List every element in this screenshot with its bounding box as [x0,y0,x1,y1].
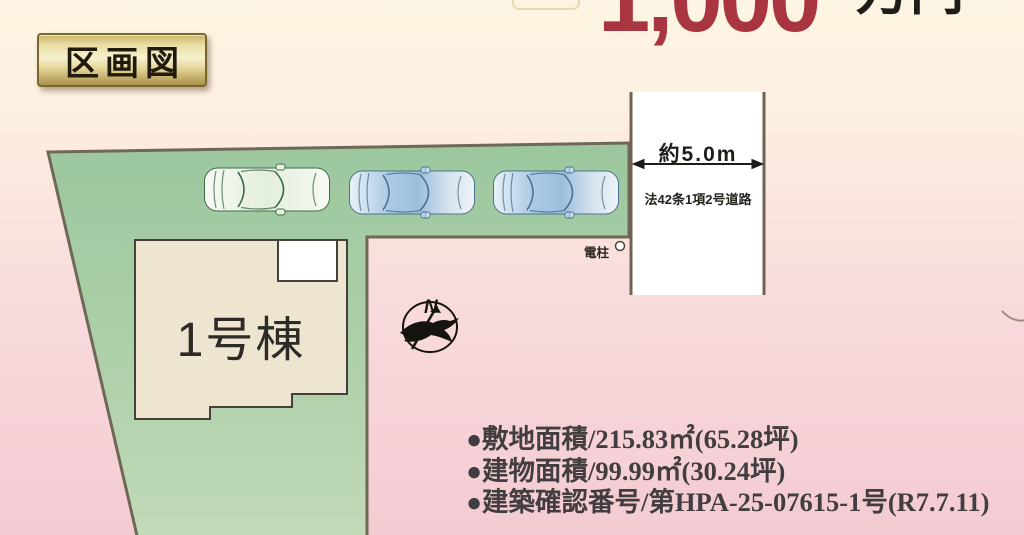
compass: N [400,297,459,352]
title-badge: 区画図 [37,33,207,87]
utility-pole-circle [616,242,625,251]
detail-line-confirmation-number: ●建築確認番号/第HPA-25-07615-1号(R7.7.11) [466,487,989,519]
detail-line-building-area: ●建物面積/99.99㎡(30.24坪) [466,456,989,488]
utility-pole-label: 電柱 [584,242,609,261]
detail-line-site-area: ●敷地面積/215.83㎡(65.28坪) [466,424,989,456]
price-unit: 万円 [856,0,964,18]
neighbor-corner-line [1002,311,1024,321]
car-top-view-blue-2 [494,167,619,218]
car-top-view-green [205,164,330,215]
car-top-view-blue-1 [350,167,475,218]
property-details-list: ●敷地面積/215.83㎡(65.28坪) ●建物面積/99.99㎡(30.24… [466,424,989,519]
compass-n-label: N [424,297,439,318]
road-type-label: 法42条1項2号道路 [628,189,768,208]
road-width-label: 約5.0m [631,138,765,168]
price-label-badge-partial [512,0,580,10]
compass-bird-icon [400,318,459,342]
plot-plan-page: N 1,000 万円 区画図 1号棟 約5.0m 法42条1項2号道路 電柱 ●… [0,0,1024,535]
building-notch [278,240,337,281]
building-label: 1号棟 [135,300,347,370]
price-amount: 1,000 [598,0,818,46]
